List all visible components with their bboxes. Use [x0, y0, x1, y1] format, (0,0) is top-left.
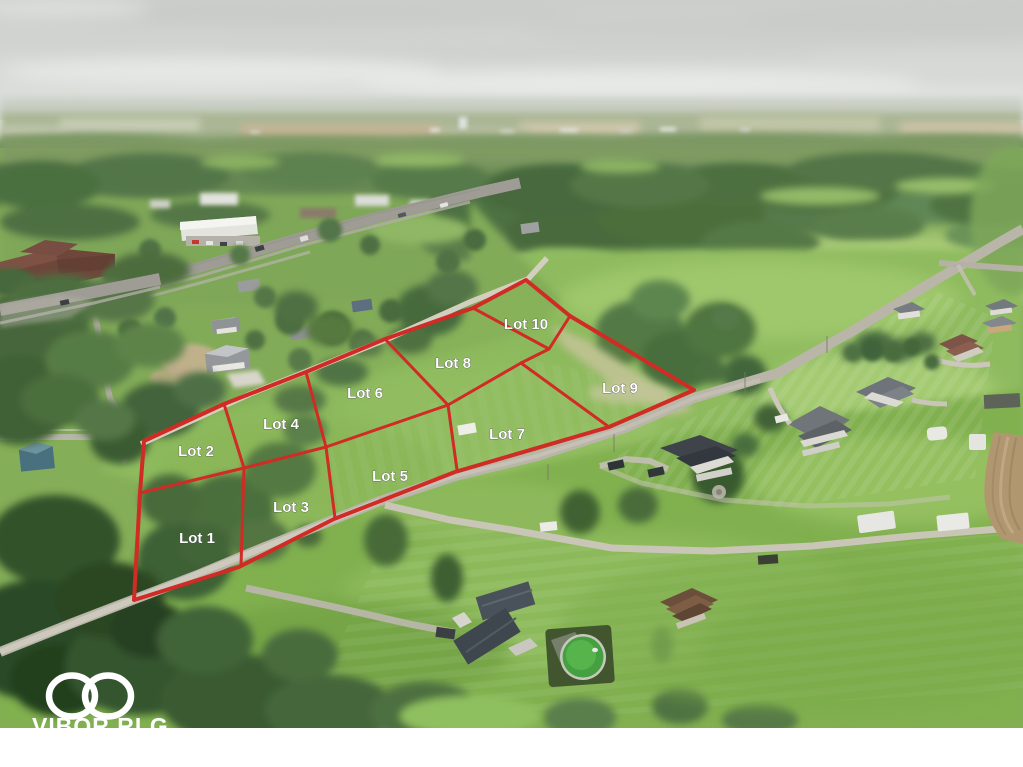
svg-text:Lot 10: Lot 10	[504, 316, 548, 333]
svg-text:Lot 1: Lot 1	[179, 530, 215, 547]
svg-text:Lot 7: Lot 7	[489, 426, 525, 443]
svg-text:Lot 2: Lot 2	[178, 443, 214, 460]
svg-text:Lot 8: Lot 8	[435, 355, 471, 372]
svg-text:Lot 5: Lot 5	[372, 468, 408, 485]
svg-text:Lot 4: Lot 4	[263, 416, 299, 433]
svg-text:Lot 9: Lot 9	[602, 380, 638, 397]
svg-text:Lot 3: Lot 3	[273, 499, 309, 516]
svg-text:Lot 6: Lot 6	[347, 385, 383, 402]
